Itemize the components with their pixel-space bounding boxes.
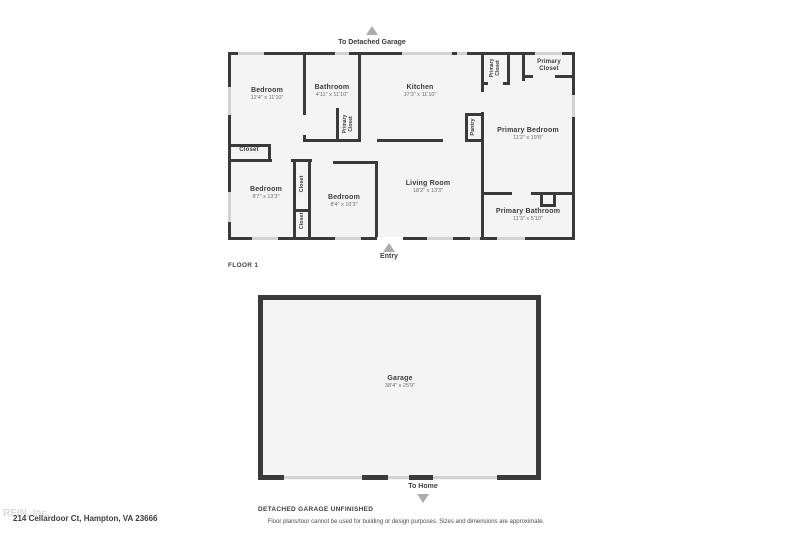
door-opening (533, 75, 555, 78)
wall (536, 295, 541, 480)
window (238, 52, 264, 55)
door-opening (303, 115, 306, 135)
garage-door (284, 476, 362, 479)
arrow-up-icon (366, 26, 378, 35)
door-opening (488, 82, 503, 85)
wall (258, 295, 541, 300)
wall (303, 139, 337, 142)
window (335, 237, 361, 240)
wall (358, 52, 361, 142)
window (228, 87, 231, 115)
window (572, 95, 575, 117)
wall (258, 475, 284, 480)
entry-label: Entry (359, 253, 419, 260)
property-address: 214 Cellardoor Ct, Hampton, VA 23666 (13, 514, 158, 523)
wall (375, 161, 378, 237)
wall (231, 144, 271, 147)
wall (377, 139, 443, 142)
wall (362, 475, 388, 480)
wall (484, 192, 512, 195)
arrow-down-icon (417, 494, 429, 503)
garage-door (433, 476, 497, 479)
wall (497, 475, 541, 480)
wall (333, 161, 378, 164)
floorplan-image: Bedroom 12'4" x 11'10" Bathroom 4'11" x … (0, 0, 800, 533)
wall (572, 52, 575, 240)
wall (258, 295, 263, 480)
arrow-up-icon (383, 243, 395, 252)
window (402, 52, 452, 55)
room-label-primary-closet-a: Primary Closet (342, 111, 356, 137)
wall (336, 139, 361, 142)
room-label-closet-3: Closet (297, 206, 307, 236)
window (335, 52, 349, 55)
window (252, 237, 278, 240)
wall (481, 112, 484, 237)
window (228, 192, 231, 222)
garage-plan (258, 295, 541, 480)
window (457, 52, 467, 55)
garage-door (388, 476, 409, 479)
window (470, 237, 480, 240)
window (497, 237, 525, 240)
window (535, 52, 562, 55)
wall (507, 52, 510, 85)
wall (409, 475, 433, 480)
wall (336, 108, 339, 142)
wall (481, 52, 484, 92)
disclaimer-text: Floor plans/tour cannot be used for buil… (206, 519, 606, 525)
room-label-primary-closet-b: Primary Closet (489, 55, 503, 81)
to-home-label: To Home (391, 483, 455, 490)
garage-caption: DETACHED GARAGE UNFINISHED (258, 506, 373, 513)
wall (293, 162, 296, 237)
floor1-tag: FLOOR 1 (228, 262, 258, 269)
to-detached-garage-label: To Detached Garage (312, 39, 432, 46)
wall (228, 159, 312, 162)
door-opening (272, 159, 291, 162)
room-label-pantry: Pantry (468, 112, 478, 142)
room-label-closet-2: Closet (297, 169, 307, 199)
wall (308, 162, 311, 237)
wall (553, 195, 556, 207)
entry-opening (377, 237, 403, 240)
window (427, 237, 453, 240)
